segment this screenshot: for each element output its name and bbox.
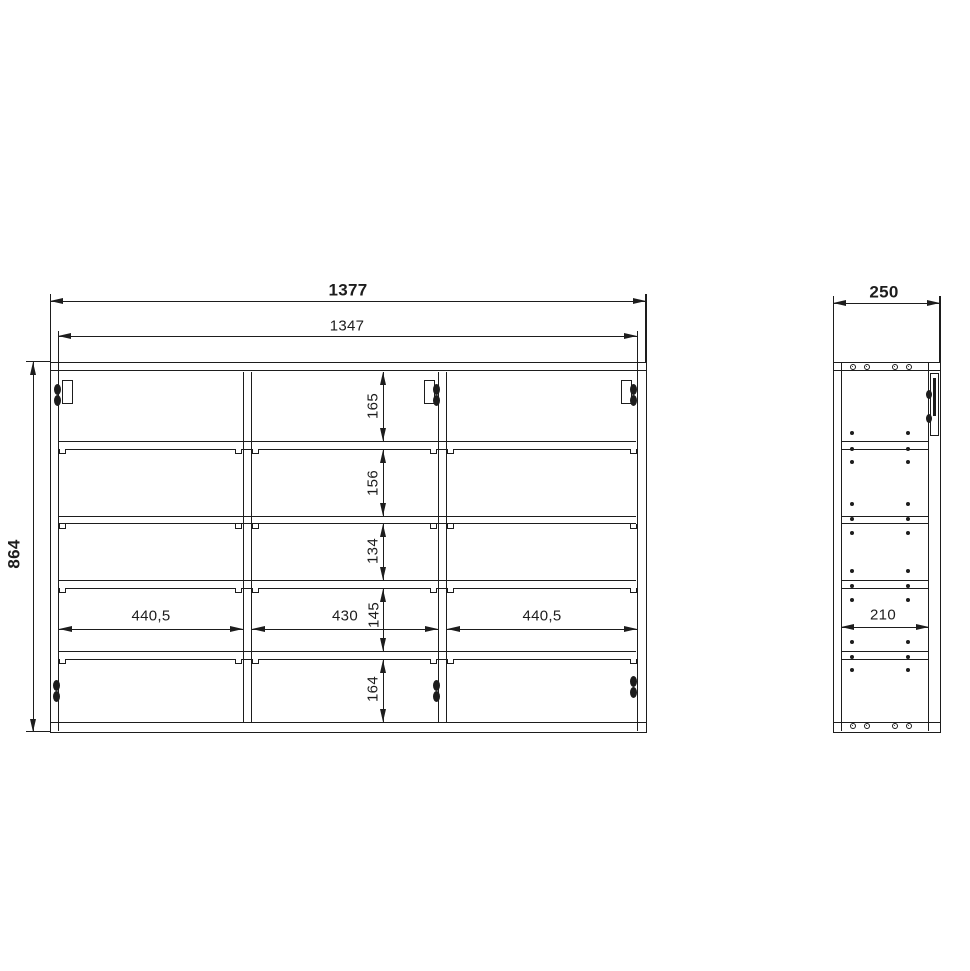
dim-column-line	[59, 629, 243, 630]
hinge-plate-icon	[62, 380, 73, 404]
shelf-pin-notch	[430, 524, 437, 529]
side-shelf-line	[842, 523, 928, 524]
dim-arrow	[59, 626, 72, 632]
side-shelf-line	[842, 580, 928, 581]
drill-hole-marker	[864, 723, 870, 729]
shelf-pin-notch	[252, 524, 259, 529]
front-shelf-line	[59, 523, 636, 524]
dim-label-inner-depth: 210	[870, 608, 896, 623]
dim-arrow	[624, 626, 637, 632]
side-shelf-line	[842, 651, 928, 652]
dim-arrow	[380, 372, 386, 385]
dim-arrow	[425, 626, 438, 632]
drill-hole-marker	[906, 447, 910, 451]
dim-arrow	[833, 300, 846, 306]
drill-hole-marker	[906, 502, 910, 506]
shelf-pin-notch	[447, 588, 454, 593]
drill-hole-marker	[906, 569, 910, 573]
shelf-pin-notch	[252, 588, 259, 593]
drill-hole-marker	[906, 531, 910, 535]
extension-line	[50, 294, 51, 362]
front-divider-2-right-line	[446, 372, 447, 722]
dim-column-line	[447, 629, 637, 630]
dim-arrow	[50, 298, 63, 304]
hinge-arm-icon	[630, 395, 637, 406]
technical-drawing-canvas: 1377 1347 864 250 210 165 156 134 145 16…	[0, 0, 970, 971]
front-divider-2-left-line	[438, 372, 439, 722]
dim-label-inner-width: 1347	[330, 319, 365, 334]
drill-hole-marker	[906, 460, 910, 464]
front-view-outline	[50, 362, 647, 733]
side-view-outline	[833, 362, 941, 733]
shelf-pin-notch	[630, 659, 637, 664]
dim-label-overall-width: 1377	[328, 282, 367, 299]
drill-hole-marker	[850, 517, 854, 521]
dim-arrow	[380, 660, 386, 673]
shelf-pin-notch	[235, 588, 242, 593]
drill-hole-marker	[906, 598, 910, 602]
drill-hole-marker	[906, 723, 912, 729]
front-divider-1-right-line	[251, 372, 252, 722]
drill-hole-marker	[906, 584, 910, 588]
shelf-pin-notch	[630, 449, 637, 454]
shelf-pin-notch	[59, 449, 66, 454]
drill-hole-marker	[906, 655, 910, 659]
dim-column-line	[252, 629, 438, 630]
shelf-pin-notch	[630, 588, 637, 593]
dim-arrow	[380, 589, 386, 602]
dim-arrow	[252, 626, 265, 632]
shelf-pin-notch	[252, 449, 259, 454]
drill-hole-marker	[892, 364, 898, 370]
front-shelf-line	[59, 441, 636, 442]
drill-hole-marker	[850, 668, 854, 672]
shelf-pin-notch	[447, 449, 454, 454]
front-shelf-line	[59, 651, 636, 652]
dim-overall-height-line	[33, 362, 34, 732]
shelf-pin-notch	[59, 659, 66, 664]
drill-hole-marker	[850, 598, 854, 602]
shelf-pin-notch	[235, 449, 242, 454]
shelf-pin-notch	[630, 524, 637, 529]
drill-hole-marker	[850, 723, 856, 729]
dim-inner-width-line	[58, 336, 637, 337]
front-shelf-line	[59, 449, 636, 450]
dim-label-row-3: 134	[366, 538, 381, 564]
hinge-arm-icon	[54, 384, 61, 395]
hinge-arm-icon	[433, 384, 440, 395]
shelf-pin-notch	[447, 659, 454, 664]
shelf-pin-notch	[430, 588, 437, 593]
dim-arrow	[447, 626, 460, 632]
front-bottom-panel-inner-line	[51, 722, 646, 723]
side-shelf-line	[842, 441, 928, 442]
drill-hole-marker	[864, 364, 870, 370]
shelf-pin-notch	[430, 449, 437, 454]
dim-arrow	[30, 362, 36, 375]
hinge-arm-icon	[433, 680, 440, 691]
dim-arrow	[380, 638, 386, 651]
hinge-arm-icon	[630, 676, 637, 687]
dim-arrow	[30, 719, 36, 732]
shelf-pin-notch	[235, 524, 242, 529]
front-shelf-line	[59, 588, 636, 589]
dim-label-row-5: 164	[366, 676, 381, 702]
hinge-arm-icon	[630, 384, 637, 395]
shelf-pin-notch	[59, 588, 66, 593]
dim-arrow	[380, 524, 386, 537]
dim-label-column-2: 430	[332, 609, 358, 624]
dim-depth-line	[833, 303, 940, 304]
shelf-pin-notch	[59, 524, 66, 529]
front-top-panel-inner-line	[51, 370, 646, 371]
drill-hole-marker	[906, 431, 910, 435]
drill-hole-marker	[850, 655, 854, 659]
dim-arrow	[58, 333, 71, 339]
side-shelf-line	[842, 449, 928, 450]
drill-hole-marker	[850, 584, 854, 588]
hinge-arm-icon	[53, 691, 60, 702]
dim-arrow	[380, 503, 386, 516]
dim-arrow	[230, 626, 243, 632]
hinge-arm-icon	[54, 395, 61, 406]
hinge-arm-icon	[53, 680, 60, 691]
hinge-arm-icon	[630, 687, 637, 698]
front-left-panel-inner-line	[58, 363, 59, 731]
drill-hole-marker	[850, 502, 854, 506]
dim-overall-width-line	[50, 301, 646, 302]
front-shelf-line	[59, 659, 636, 660]
extension-line	[645, 294, 646, 362]
shelf-pin-notch	[430, 659, 437, 664]
shelf-pin-notch	[447, 524, 454, 529]
side-shelf-line	[842, 588, 928, 589]
wall-bracket-hook	[926, 390, 932, 399]
drill-hole-marker	[906, 640, 910, 644]
drill-hole-marker	[906, 517, 910, 521]
hinge-arm-icon	[433, 395, 440, 406]
drill-hole-marker	[850, 569, 854, 573]
dim-label-overall-height: 864	[6, 539, 23, 568]
dim-arrow	[380, 450, 386, 463]
dim-arrow	[633, 298, 646, 304]
drill-hole-marker	[892, 723, 898, 729]
shelf-pin-notch	[252, 659, 259, 664]
dim-arrow	[916, 624, 929, 630]
dim-label-row-2: 156	[366, 470, 381, 496]
dim-label-row-4: 145	[367, 602, 382, 628]
dim-arrow	[380, 428, 386, 441]
dim-label-row-1: 165	[366, 393, 381, 419]
side-front-edge-inner-line	[841, 363, 842, 731]
dim-arrow	[624, 333, 637, 339]
dim-label-column-1: 440,5	[131, 609, 170, 624]
side-top-panel-inner-line	[834, 370, 940, 371]
wall-bracket-rail	[933, 378, 936, 416]
drill-hole-marker	[850, 640, 854, 644]
side-bottom-panel-inner-line	[834, 722, 940, 723]
dim-label-column-3: 440,5	[522, 609, 561, 624]
drill-hole-marker	[850, 364, 856, 370]
front-right-panel-inner-line	[637, 363, 638, 731]
side-shelf-line	[842, 516, 928, 517]
drill-hole-marker	[850, 531, 854, 535]
drill-hole-marker	[906, 364, 912, 370]
drill-hole-marker	[850, 431, 854, 435]
drill-hole-marker	[850, 447, 854, 451]
drill-hole-marker	[906, 668, 910, 672]
front-shelf-line	[59, 516, 636, 517]
hinge-arm-icon	[433, 691, 440, 702]
dim-arrow	[380, 567, 386, 580]
dim-arrow	[841, 624, 854, 630]
side-shelf-line	[842, 659, 928, 660]
front-shelf-line	[59, 580, 636, 581]
dim-arrow	[380, 709, 386, 722]
dim-label-depth: 250	[869, 284, 898, 301]
drill-hole-marker	[850, 460, 854, 464]
shelf-pin-notch	[235, 659, 242, 664]
dim-arrow	[927, 300, 940, 306]
wall-bracket-hook	[926, 414, 932, 423]
front-divider-1-left-line	[243, 372, 244, 722]
